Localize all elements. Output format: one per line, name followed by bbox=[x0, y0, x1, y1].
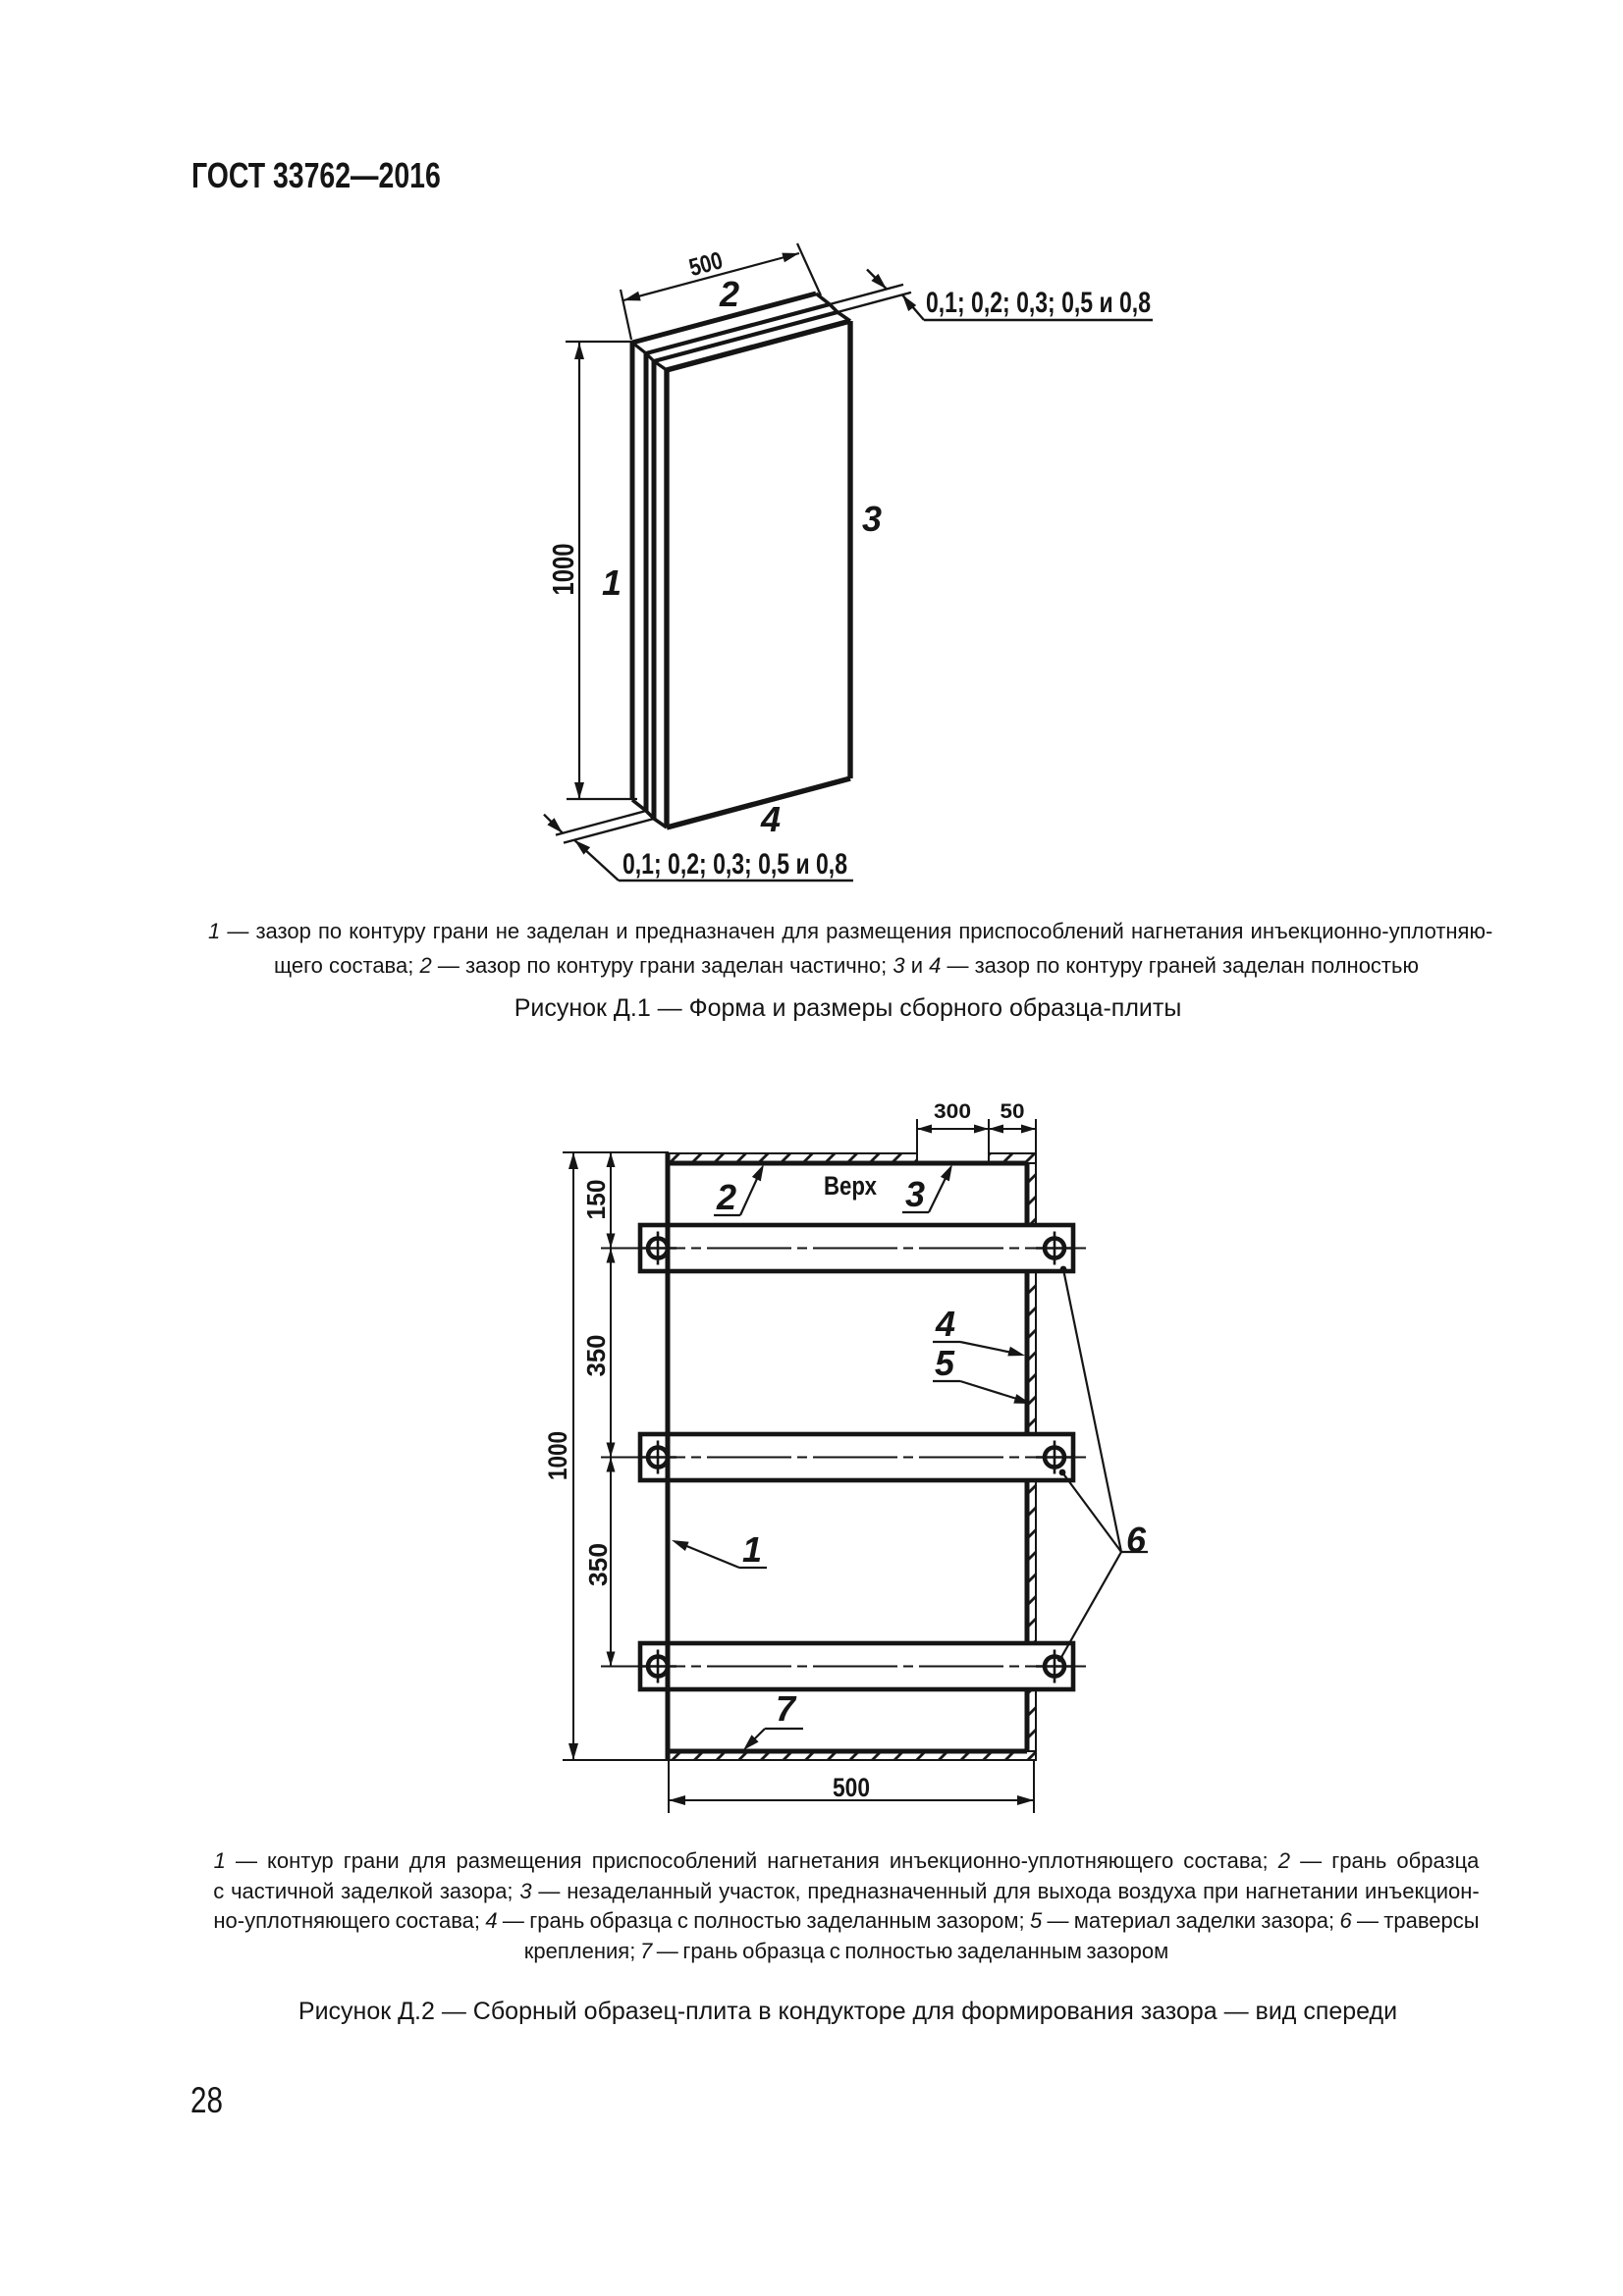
svg-text:1: 1 bbox=[602, 562, 622, 603]
svg-text:0,1; 0,2; 0,3; 0,5 и 0,8: 0,1; 0,2; 0,3; 0,5 и 0,8 bbox=[622, 848, 847, 881]
svg-text:350: 350 bbox=[583, 1543, 613, 1586]
svg-text:7: 7 bbox=[776, 1688, 797, 1729]
svg-text:4: 4 bbox=[760, 799, 781, 839]
svg-text:350: 350 bbox=[581, 1335, 611, 1377]
svg-text:1: 1 bbox=[742, 1529, 762, 1570]
svg-text:300: 300 bbox=[934, 1100, 971, 1123]
svg-text:3: 3 bbox=[862, 499, 882, 539]
svg-text:2: 2 bbox=[716, 1177, 736, 1217]
svg-text:4: 4 bbox=[935, 1304, 955, 1344]
svg-text:Верх: Верх bbox=[824, 1171, 877, 1201]
svg-text:1000: 1000 bbox=[543, 1431, 572, 1480]
svg-text:3: 3 bbox=[905, 1174, 925, 1214]
svg-text:2: 2 bbox=[719, 274, 739, 314]
svg-text:0,1; 0,2; 0,3; 0,5 и 0,8: 0,1; 0,2; 0,3; 0,5 и 0,8 bbox=[926, 287, 1151, 319]
svg-text:50: 50 bbox=[1001, 1100, 1025, 1123]
svg-text:5: 5 bbox=[935, 1343, 955, 1383]
svg-text:500: 500 bbox=[833, 1773, 870, 1802]
svg-text:150: 150 bbox=[581, 1180, 611, 1220]
svg-text:6: 6 bbox=[1126, 1520, 1147, 1560]
svg-text:1000: 1000 bbox=[546, 544, 580, 596]
